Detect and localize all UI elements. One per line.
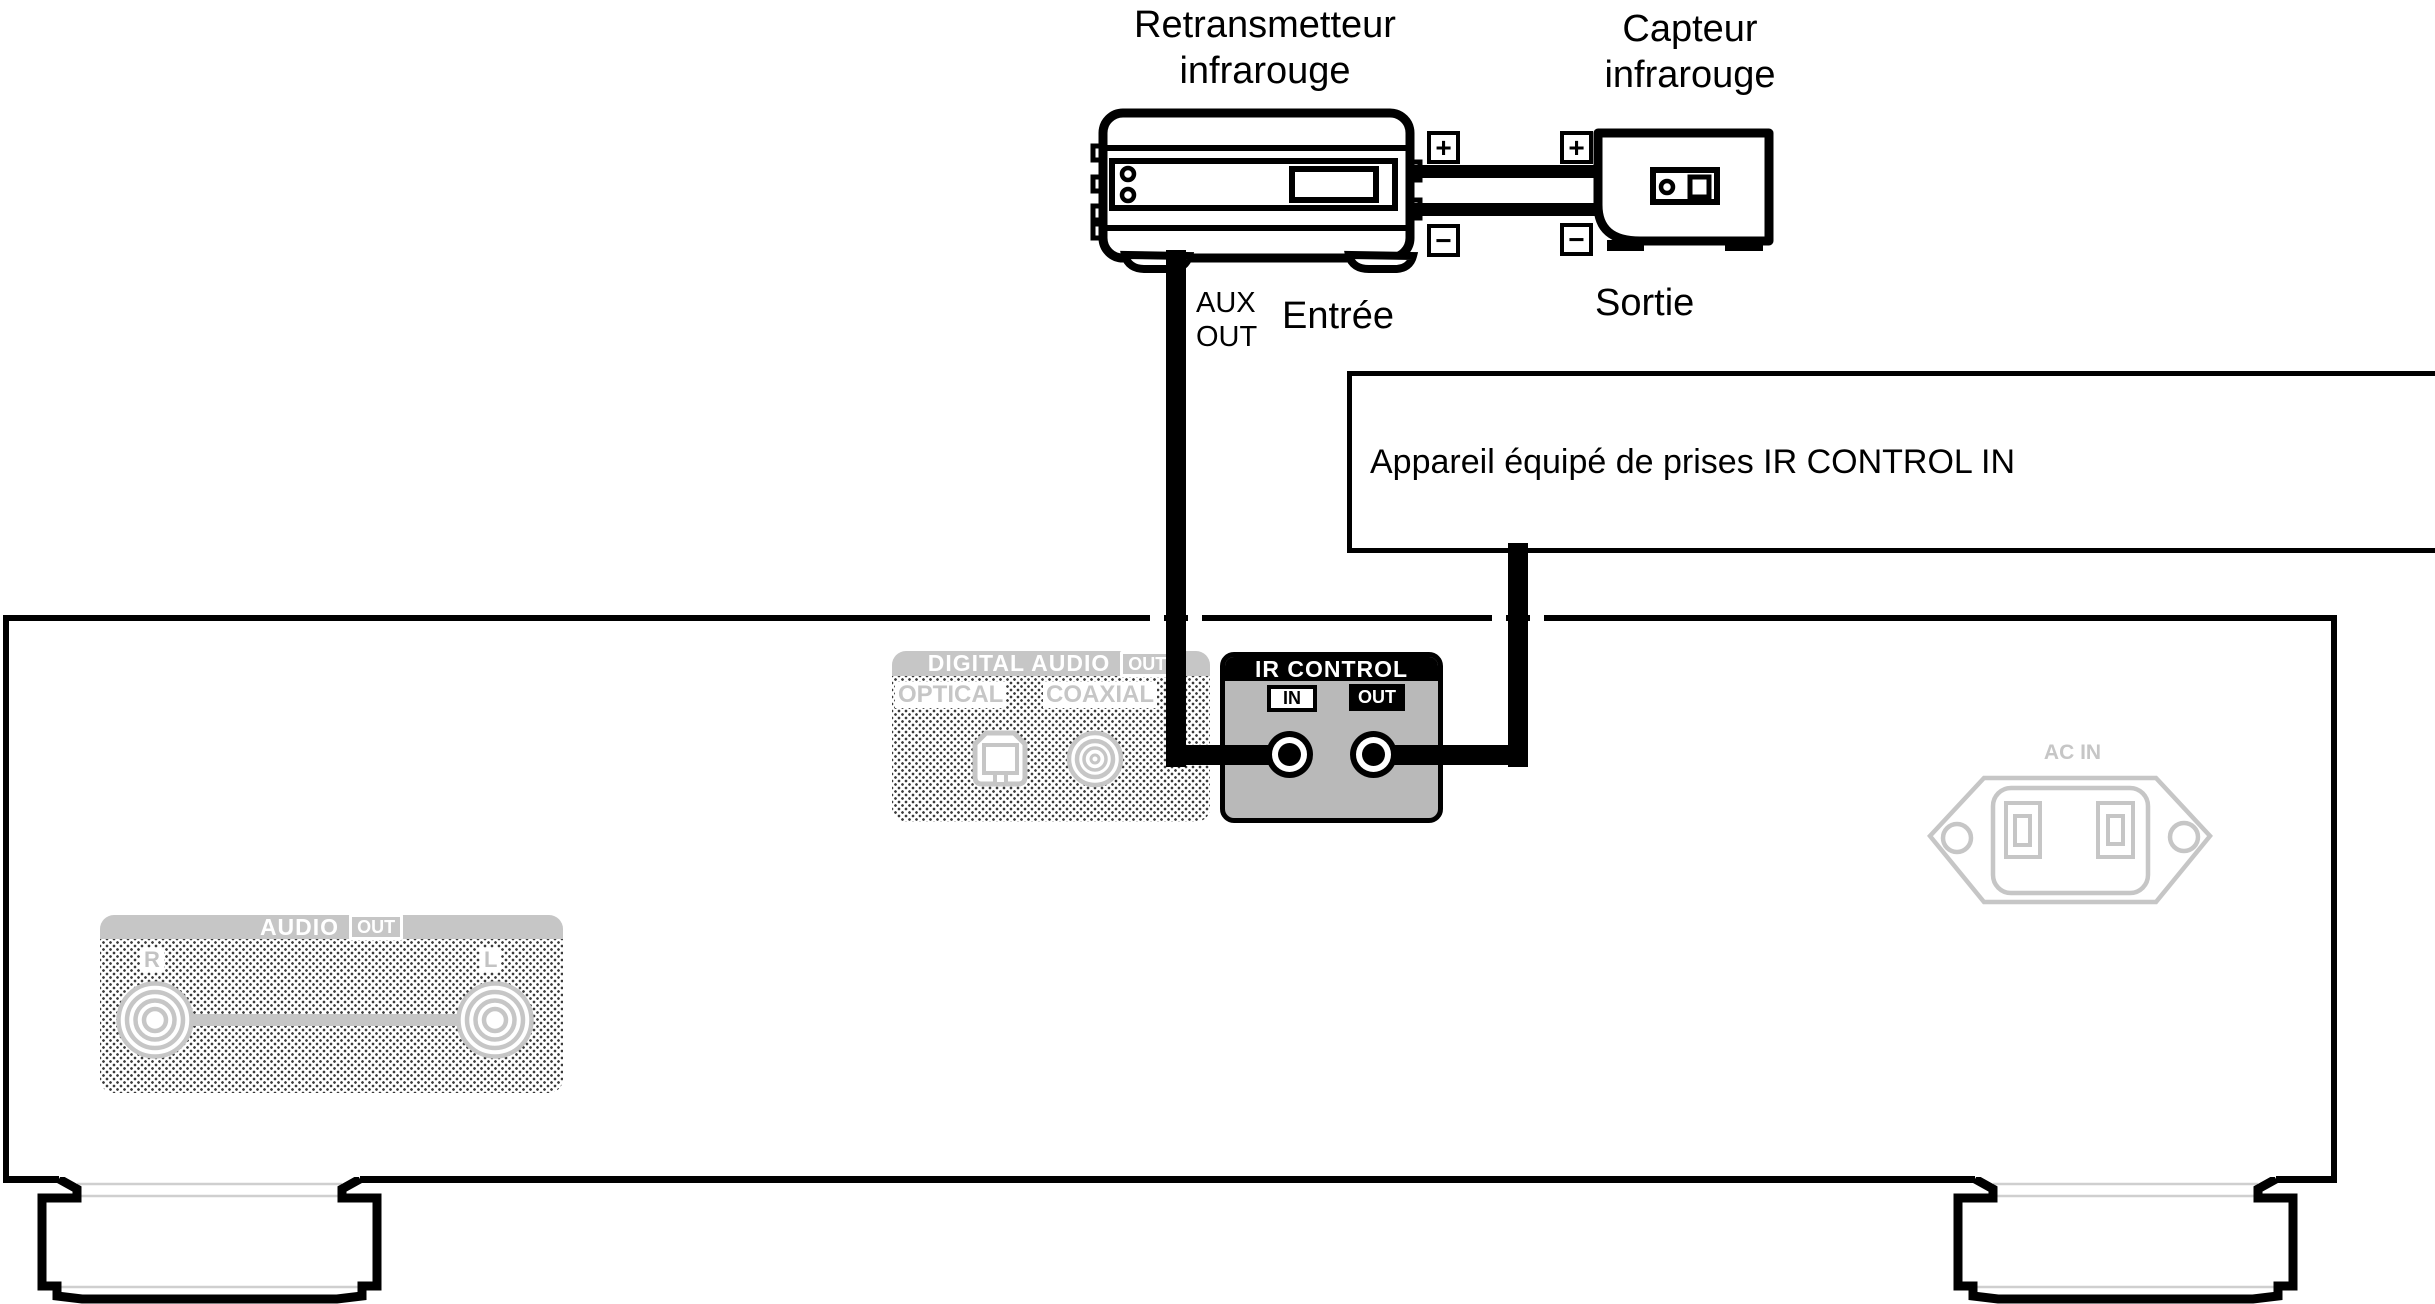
audio-out-title: AUDIO bbox=[260, 915, 339, 941]
retransmitter-display bbox=[1292, 169, 1376, 200]
audio-jack-left-channel bbox=[452, 977, 538, 1063]
coaxial-label: COAXIAL bbox=[1043, 682, 1157, 708]
retransmitter-label-line2: infrarouge bbox=[1075, 48, 1455, 94]
ir-connection-diagram: Retransmetteur infrarouge Capteur infrar… bbox=[0, 0, 2435, 1304]
audio-jack-bar bbox=[155, 1014, 495, 1026]
minus-terminal-retransmitter: − bbox=[1427, 224, 1460, 257]
audio-jack-right-channel bbox=[112, 977, 198, 1063]
ir-control-title: IR CONTROL bbox=[1255, 656, 1408, 683]
sensor-wire-top bbox=[1413, 165, 1599, 178]
plus-sign: + bbox=[1435, 134, 1451, 162]
sensor-wire-bottom bbox=[1413, 203, 1599, 216]
digital-audio-header: DIGITAL AUDIO OUT bbox=[892, 651, 1210, 676]
chassis-foot-right bbox=[1953, 1177, 2298, 1304]
digital-audio-title: DIGITAL AUDIO bbox=[928, 651, 1111, 677]
cable-aux-to-ir-in-vertical bbox=[1166, 250, 1186, 767]
retransmitter-foot-right bbox=[1349, 255, 1413, 269]
led-indicator-bottom bbox=[1122, 189, 1134, 201]
ir-control-in-jack bbox=[1266, 731, 1313, 778]
ac-inlet-icon bbox=[1920, 770, 2220, 910]
ir-retransmitter-device bbox=[1085, 105, 1465, 285]
sensor-label-line2: infrarouge bbox=[1540, 52, 1840, 98]
led-indicator-top bbox=[1122, 168, 1134, 180]
ac-in-label: AC IN bbox=[2010, 741, 2135, 765]
minus-sign: − bbox=[1568, 226, 1584, 254]
sensor-label: Capteur infrarouge bbox=[1540, 6, 1840, 98]
ir-in-badge: IN bbox=[1267, 685, 1317, 712]
cable-gap bbox=[1492, 608, 1506, 624]
ir-control-section: IR CONTROL IN OUT bbox=[1220, 652, 1443, 823]
ir-out-badge: OUT bbox=[1349, 684, 1405, 711]
audio-out-badge: OUT bbox=[349, 915, 403, 940]
optical-connector-icon bbox=[970, 728, 1032, 790]
digital-audio-section: DIGITAL AUDIO OUT OPTICAL COAXIAL bbox=[892, 651, 1210, 822]
sensor-cell-icon bbox=[1690, 177, 1709, 197]
aux-out-label: AUX OUT bbox=[1196, 286, 1257, 354]
output-label: Sortie bbox=[1595, 283, 1694, 323]
sensor-label-line1: Capteur bbox=[1540, 6, 1840, 52]
device-callout-text: Appareil équipé de prises IR CONTROL IN bbox=[1352, 443, 2015, 482]
audio-right-label: R bbox=[140, 948, 164, 972]
ir-control-out-jack bbox=[1350, 731, 1397, 778]
ir-control-header: IR CONTROL bbox=[1225, 657, 1438, 681]
ir-sensor-device bbox=[1588, 123, 1783, 258]
plus-sign: + bbox=[1568, 134, 1584, 162]
coaxial-connector-icon bbox=[1065, 729, 1125, 789]
retransmitter-label-line1: Retransmetteur bbox=[1075, 2, 1455, 48]
input-label: Entrée bbox=[1282, 296, 1394, 336]
audio-out-header: AUDIO OUT bbox=[100, 915, 563, 939]
cable-gap bbox=[1150, 608, 1164, 624]
sensor-eye-icon bbox=[1661, 181, 1673, 193]
cable-ir-out-to-device-vertical bbox=[1508, 543, 1528, 767]
cable-gap bbox=[1188, 608, 1202, 624]
aux-out-line1: AUX bbox=[1196, 286, 1257, 320]
cable-gap bbox=[1530, 608, 1544, 624]
audio-left-label: L bbox=[480, 948, 501, 972]
plus-terminal-retransmitter: + bbox=[1427, 131, 1460, 164]
minus-sign: − bbox=[1435, 227, 1451, 255]
retransmitter-label: Retransmetteur infrarouge bbox=[1075, 2, 1455, 94]
device-callout-box: Appareil équipé de prises IR CONTROL IN bbox=[1347, 371, 2435, 553]
chassis-foot-left bbox=[37, 1177, 382, 1304]
aux-out-line2: OUT bbox=[1196, 320, 1257, 354]
panel-bottom-edge bbox=[360, 1176, 1975, 1183]
optical-label: OPTICAL bbox=[895, 682, 1006, 708]
